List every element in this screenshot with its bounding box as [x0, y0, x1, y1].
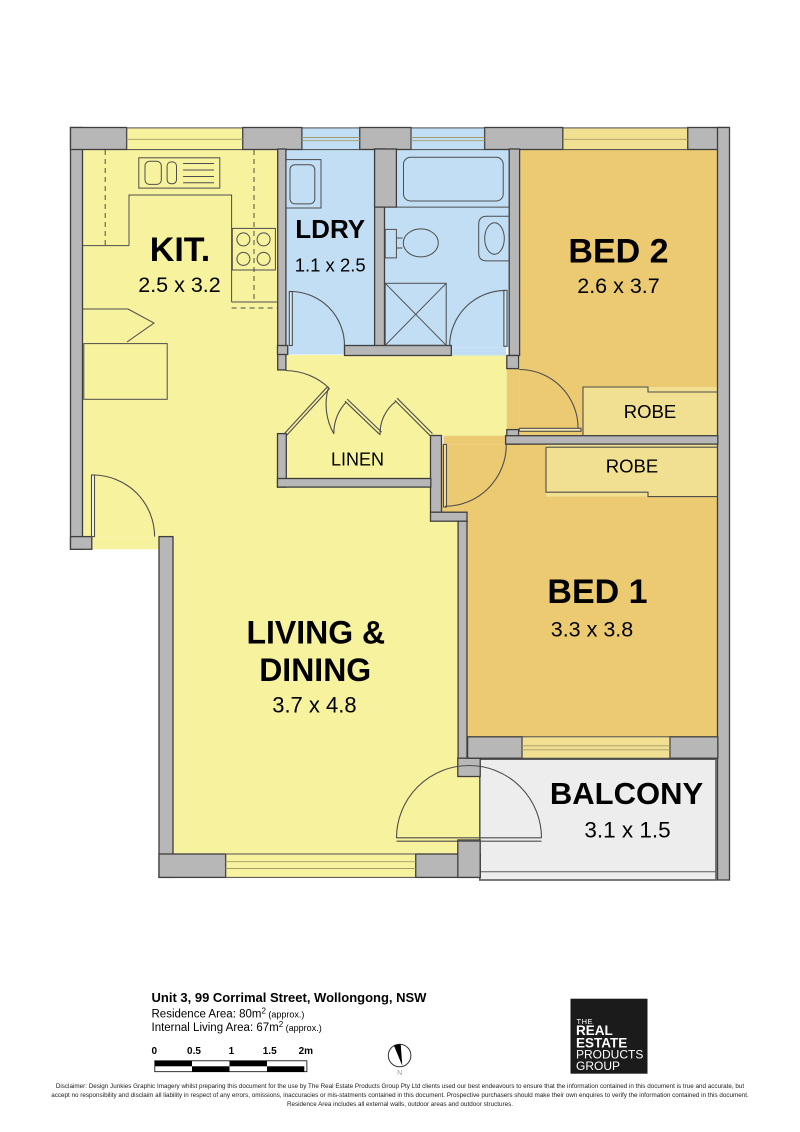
svg-text:DINING: DINING [259, 652, 371, 688]
svg-text:3.3 x 3.8: 3.3 x 3.8 [551, 618, 634, 642]
svg-text:Unit 3, 99 Corrimal Street, Wo: Unit 3, 99 Corrimal Street, Wollongong, … [152, 990, 428, 1005]
svg-text:KIT.: KIT. [150, 231, 210, 269]
svg-text:LIVING &: LIVING & [246, 615, 385, 651]
svg-text:GROUP: GROUP [576, 1059, 620, 1073]
svg-text:1: 1 [229, 1046, 235, 1057]
svg-text:BALCONY: BALCONY [550, 776, 704, 811]
svg-text:BED 2: BED 2 [568, 233, 668, 271]
svg-text:Residence Area: 80m2 (approx.): Residence Area: 80m2 (approx.) [152, 1007, 305, 1021]
svg-text:2m: 2m [299, 1046, 314, 1057]
svg-text:LDRY: LDRY [295, 214, 365, 244]
svg-text:2.6 x 3.7: 2.6 x 3.7 [577, 274, 659, 298]
svg-text:0.5: 0.5 [187, 1046, 201, 1057]
svg-text:LINEN: LINEN [331, 450, 384, 470]
svg-text:2.5 x 3.2: 2.5 x 3.2 [138, 273, 220, 297]
svg-text:3.1 x 1.5: 3.1 x 1.5 [584, 818, 670, 843]
svg-text:Disclaimer: Design Junkies Gra: Disclaimer: Design Junkies Graphic Image… [56, 1083, 745, 1090]
svg-text:3.7 x 4.8: 3.7 x 4.8 [272, 693, 356, 718]
svg-text:accept no responsibility and d: accept no responsibility and disclaim al… [51, 1092, 749, 1099]
svg-text:BED 1: BED 1 [547, 573, 647, 611]
svg-text:N: N [397, 1070, 402, 1077]
svg-text:Internal Living Area: 67m2 (ap: Internal Living Area: 67m2 (approx.) [152, 1020, 322, 1034]
svg-text:1.5: 1.5 [263, 1046, 277, 1057]
svg-text:Residence Area includes all ex: Residence Area includes all external wal… [287, 1101, 513, 1108]
svg-text:0: 0 [152, 1046, 158, 1057]
svg-text:ROBE: ROBE [624, 401, 676, 422]
svg-text:ROBE: ROBE [606, 456, 658, 477]
svg-text:1.1 x 2.5: 1.1 x 2.5 [295, 255, 366, 276]
